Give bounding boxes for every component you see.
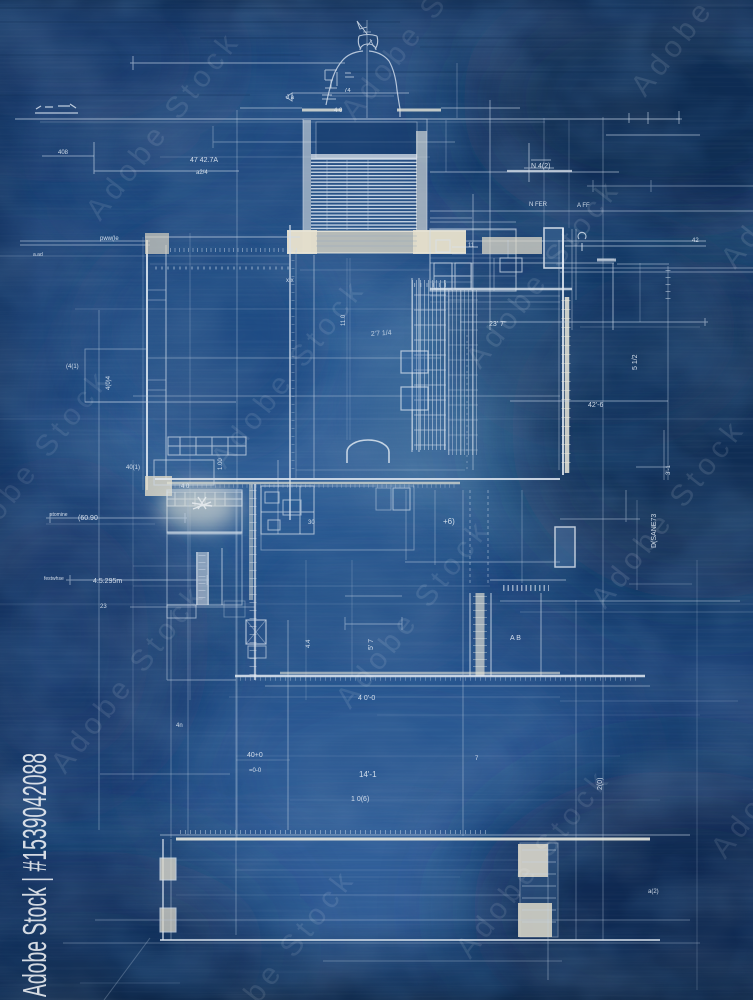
- svg-text:N 4(2): N 4(2): [531, 163, 550, 170]
- svg-text:42'-6: 42'-6: [588, 402, 603, 409]
- svg-text:=0-0: =0-0: [249, 768, 262, 774]
- svg-text:3'-1: 3'-1: [666, 465, 672, 475]
- svg-text:pww(le: pww(le: [100, 236, 119, 242]
- svg-text:4n: 4n: [176, 723, 183, 729]
- svg-text:4.4: 4.4: [306, 639, 312, 648]
- svg-text:J a: J a: [286, 95, 295, 101]
- svg-text:Adobe Stock | #1539042088: Adobe Stock | #1539042088: [16, 753, 53, 997]
- svg-text:(60.90: (60.90: [78, 515, 98, 522]
- svg-text:5 1/2: 5 1/2: [632, 354, 639, 370]
- svg-text:40+0: 40+0: [247, 752, 263, 759]
- svg-text:2'7 1/4: 2'7 1/4: [371, 330, 392, 338]
- svg-text:4 0: 4 0: [181, 484, 190, 490]
- svg-text:14'-1: 14'-1: [359, 770, 377, 779]
- svg-text:a.ad: a.ad: [33, 252, 43, 258]
- svg-text:a(2): a(2): [648, 889, 659, 895]
- svg-text:N FER: N FER: [529, 202, 548, 208]
- svg-text:a2/4: a2/4: [196, 170, 208, 176]
- svg-text:A B: A B: [510, 635, 521, 642]
- svg-text:40(1): 40(1): [126, 465, 140, 471]
- svg-text:festwhse: festwhse: [44, 576, 64, 582]
- svg-text:(4(1): (4(1): [66, 364, 79, 370]
- svg-text:+6): +6): [443, 517, 455, 526]
- svg-text:47 42.7A: 47 42.7A: [190, 157, 218, 164]
- svg-text:11: 11: [468, 243, 475, 249]
- svg-text:4.5.295m: 4.5.295m: [93, 578, 122, 585]
- svg-text:23: 23: [100, 604, 107, 610]
- svg-text:42: 42: [692, 238, 699, 244]
- svg-text:1 0(6): 1 0(6): [351, 796, 369, 803]
- svg-text:x x: x x: [286, 278, 294, 284]
- svg-text:408: 408: [58, 150, 69, 156]
- svg-text:stomine: stomine: [50, 512, 68, 518]
- svg-text:30: 30: [308, 520, 315, 526]
